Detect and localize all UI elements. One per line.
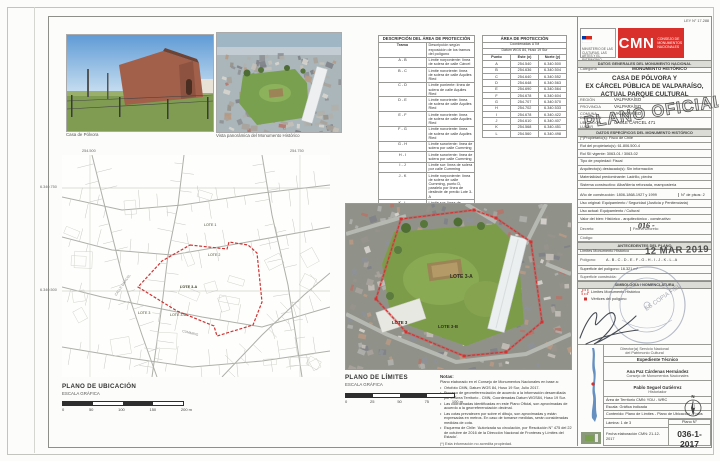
lamina-value: Lámina: 1 de 3 <box>606 421 631 425</box>
fecha-row: Fecha elaboración CMN: 21-12-2017 <box>604 428 668 446</box>
location-map: LOTE 1 LOTE 2 LOTE 3-A LOTE 3 LOTE 3-B C… <box>62 155 330 377</box>
categoria-value: MONUMENTO HISTÓRICO <box>610 66 709 71</box>
lote3-label-limits: LOTE 3 <box>392 320 407 325</box>
codigo-label: Código: <box>580 236 593 240</box>
limits-scale-bar <box>345 393 455 399</box>
fold-line <box>34 7 35 453</box>
list-item: 75 <box>425 399 429 404</box>
chile-map-icon <box>582 346 606 426</box>
list-item: Esquema de Chile: 'Autorizada su circula… <box>440 426 572 439</box>
title-block: MINISTERIO DE LAS CULTURAS, LAS ARTES Y … <box>578 16 711 446</box>
descripcion-area-proteccion-table: DESCRIPCIÓN DEL ÁREA DE PROTECCIÓN Tramo… <box>378 35 475 230</box>
monument-name-line1: CASA DE PÓLVORA Y <box>578 75 711 83</box>
utm-table-rows: A254.5406.340.500B254.6366.340.504C254.6… <box>483 61 567 137</box>
list-item: 150 <box>149 407 156 412</box>
photo-casa-polvora <box>66 34 214 132</box>
location-scale-bar <box>62 401 184 407</box>
table-row: L254.5606.340.498 <box>483 131 567 137</box>
limits-map: LOTE 3-A LOTE 3 LOTE 3-B <box>345 203 572 370</box>
list-item: 100 <box>118 407 125 412</box>
list-item: 50 <box>397 399 401 404</box>
cmn-logo: CMN CONSEJO DE MONUMENTOS NACIONALES <box>618 28 684 58</box>
lote3b-label-limits: LOTE 3-B <box>438 324 458 329</box>
photo2-caption: Vista panorámica del Monumento Histórico <box>216 133 346 138</box>
categoria-row: Categoría MONUMENTO HISTÓRICO <box>578 66 711 73</box>
desc-col-tramo: Tramo <box>379 42 427 57</box>
location-map-drawing <box>62 155 330 377</box>
spec-rows-2: Uso original: Equipamiento / Seguridad (… <box>578 200 711 223</box>
table-row: J - KLímite norponiente: línea de solera… <box>379 173 475 200</box>
table-row: B - CLímite nororiente: línea de solera … <box>379 68 475 83</box>
handwritten-decreto: 016 - <box>638 221 655 231</box>
anio-pisos-row: Año de construcción: 1806-1868-1927 y 19… <box>578 191 711 200</box>
table-row: G - HLímite suroriente: línea de solera … <box>379 141 475 152</box>
expediente-row: Expediente Técnico <box>604 356 711 363</box>
escala-value: Escala: Gráfica indicada <box>606 405 647 409</box>
poligono-label: Polígono: <box>580 258 606 262</box>
notes-list: Ortofoto CMN, Datum WGS 84, Huso 19 Sur,… <box>440 386 572 440</box>
codigo-row: Código: <box>578 235 711 242</box>
plan-sheet: Casa de Pólvora Vista panorámica del Mon… <box>0 0 720 461</box>
list-item: Tipo de propiedad: Fiscal <box>578 158 711 166</box>
lote3a-label-limits: LOTE 3-A <box>450 274 473 280</box>
cmn-name: CONSEJO DE MONUMENTOS NACIONALES <box>657 37 683 49</box>
table-row: E - FLímite nororiente: línea de solera … <box>379 112 475 127</box>
area-territorio-value: Área de Territorio CMN: YDU - WRC <box>606 398 667 402</box>
photo1-caption: Casa de Pólvora <box>66 132 212 137</box>
limits-map-aerial <box>346 204 571 369</box>
date-stamp: 12 MAR 2019 <box>645 244 709 257</box>
chile-emblem-icon <box>582 36 592 43</box>
notes-intro: Plano elaborado en el Consejo de Monumen… <box>440 380 572 384</box>
list-item: Uso actual: Equipamiento / Cultural <box>578 208 711 216</box>
fecha-value: Fecha elaboración CMN: 21-12-2017 <box>606 432 666 441</box>
lote2-label-loc: LOTE 2 <box>208 253 220 257</box>
signatory-org-1: Consejo de Monumentos Nacionales <box>604 374 711 378</box>
decreto-label: Decreto: <box>580 227 630 231</box>
chile-map-box <box>578 344 604 446</box>
lamina-row: Lámina: 1 de 3 <box>604 419 668 428</box>
notes-title: Notas: <box>440 374 572 379</box>
location-plan-title: PLANO DE UBICACIÓN <box>62 383 202 391</box>
lote3a-label-loc: LOTE 3-A <box>180 285 197 289</box>
location-plan-caption: PLANO DE UBICACIÓN ESCALA GRÁFICA 050100… <box>62 383 202 412</box>
monument-name-line2: EX CÁRCEL PÚBLICA DE VALPARAÍSO, <box>578 83 711 91</box>
plano-oficial-stamp: PLANO OFICIAL <box>581 92 719 144</box>
vista-panoramica-image <box>217 33 341 132</box>
ley-label: LEY N° 17.288 <box>682 19 711 23</box>
notes-footnote: (*) Esta información no acredita propied… <box>440 442 572 446</box>
lote1-label-loc: LOTE 1 <box>204 223 216 227</box>
pisos-value: N° de pisos: 2 <box>679 193 709 197</box>
table-row: I - JLímite sur: línea de solera por cal… <box>379 162 475 173</box>
plano-numero-box: Plano N° 036-1-2017 <box>668 419 711 446</box>
cmn-acronym: CMN <box>619 35 655 52</box>
mini-aerial-thumbnail <box>581 432 601 444</box>
table-row: D - ELímite nororiente: línea de solera … <box>379 97 475 112</box>
table-row: H - ILímite suroriente: línea de solera … <box>379 152 475 163</box>
utm-title: ÁREA DE PROTECCIÓN <box>483 36 567 43</box>
list-item: Las cotas prevalecen por sobre el dibujo… <box>440 412 572 425</box>
lote3b-label-loc: LOTE 3-B <box>170 313 186 317</box>
plano-n-value: 036-1-2017 <box>669 429 710 449</box>
anio-value: Año de construcción: 1806-1868-1927 y 19… <box>580 193 679 197</box>
list-item: 25 <box>370 399 374 404</box>
north-arrow: N <box>682 394 704 418</box>
desc-col-descripcion: Descripción según exposición de los tram… <box>427 42 475 57</box>
grid-x2-label: 254.750 <box>290 149 304 153</box>
table-row: A - BLímite norponiente: línea de solera… <box>379 57 475 68</box>
notes-block: Notas: Plano elaborado en el Consejo de … <box>440 374 572 446</box>
ministry-logo-box: MINISTERIO DE LAS CULTURAS, LAS ARTES Y … <box>580 28 616 58</box>
list-item: 50 <box>89 407 93 412</box>
grid-x1-label: 254.500 <box>82 149 96 153</box>
list-item: 0 <box>345 399 347 404</box>
svg-text:PLANO OFICIAL: PLANO OFICIAL <box>583 92 719 132</box>
location-plan-subtitle: ESCALA GRÁFICA <box>62 391 202 396</box>
expediente-label: Expediente Técnico <box>637 357 678 362</box>
categoria-label: Categoría <box>580 67 610 71</box>
list-item: Sistema constructivo: Albañilería reforz… <box>578 181 711 189</box>
list-item: Ortofoto CMN, Datum WGS 84, Huso 19 Sur,… <box>440 386 572 390</box>
list-item: 0 <box>62 407 64 412</box>
list-item: Arquitecto(s) destacado(s): Sin informac… <box>578 166 711 174</box>
limites-label: Límites Monumento Histórico <box>580 249 629 253</box>
list-item: 200 m <box>181 407 192 412</box>
list-item: Uso original: Equipamiento / Seguridad (… <box>578 200 711 208</box>
list-item: Materialidad predominante: Ladrillo, pie… <box>578 174 711 182</box>
list-item: Proceso de georreferenciación de acuerdo… <box>440 391 572 400</box>
handwritten-signature <box>574 286 646 350</box>
desc-table-title: DESCRIPCIÓN DEL ÁREA DE PROTECCIÓN <box>379 36 475 43</box>
table-row: F - GLímite nororiente: línea de solera … <box>379 126 475 141</box>
signature-1: Ana Paz Cárdenas Hernández Consejo de Mo… <box>604 364 711 381</box>
grid-y2-label: 6.340.500 <box>40 288 57 292</box>
list-item: Rol SII vigente: 3063-01 / 3063-02 <box>578 150 711 158</box>
list-item: Las coordenadas identificadas en este Pl… <box>440 402 572 411</box>
table-row: C - DLímite poniente: línea de solera de… <box>379 82 475 97</box>
lote3-label-loc: LOTE 3 <box>138 311 150 315</box>
casa-polvora-image <box>67 35 213 131</box>
location-scale-labels: 050100150200 m <box>62 407 192 412</box>
compass-icon <box>684 399 702 417</box>
grid-y1-label: 6.340.750 <box>40 185 57 189</box>
photo-vista-panoramica <box>216 32 342 133</box>
utm-coordinates-table: ÁREA DE PROTECCIÓN Coordenadas UTM Datum… <box>482 35 567 138</box>
